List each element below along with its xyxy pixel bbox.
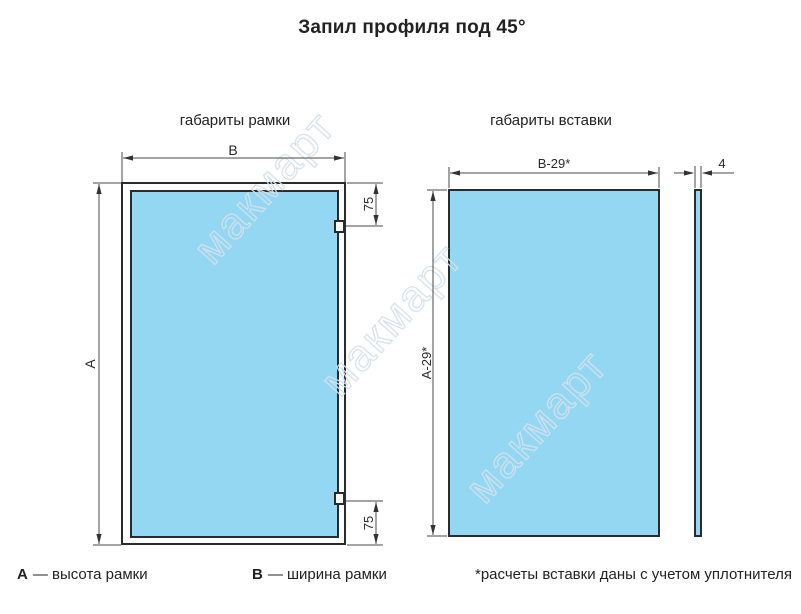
arrowhead-down	[373, 534, 378, 544]
arrowhead-right	[684, 170, 694, 175]
dim-label-hinge-bottom: 75	[361, 516, 376, 530]
arrowhead-up	[430, 191, 435, 201]
hinge-top	[334, 220, 345, 233]
arrowhead-left	[123, 155, 133, 160]
dim-frame-height: A	[82, 183, 121, 545]
dim-label-hinge-top: 75	[361, 197, 376, 211]
insert-section-label: габариты вставки	[436, 112, 666, 129]
arrowhead-left	[450, 170, 460, 175]
arrowhead-down	[96, 534, 101, 544]
dim-hinge-bottom-offset: 75	[346, 501, 383, 545]
dim-label-frame-width: B	[228, 142, 237, 158]
frame-section-label: габариты рамки	[120, 112, 350, 129]
arrowhead-right	[334, 155, 344, 160]
arrowhead-left	[702, 170, 712, 175]
legend-frame-height: A— высота рамки	[17, 566, 148, 583]
legend-b-text: — ширина рамки	[268, 566, 387, 583]
dim-label-insert-height: A-29*	[419, 347, 434, 380]
legend-frame-width: B— ширина рамки	[252, 566, 387, 583]
arrowhead-right	[648, 170, 658, 175]
diagram-canvas: Запил профиля под 45° габариты рамки габ…	[0, 0, 801, 614]
footnote: *расчеты вставки даны с учетом уплотните…	[475, 566, 792, 583]
legend-a-symbol: A	[17, 566, 28, 583]
hinge-bottom	[334, 492, 345, 505]
dim-label-insert-width: B-29*	[538, 156, 571, 171]
dim-hinge-top-offset: 75	[346, 183, 383, 226]
dim-label-frame-height: A	[82, 359, 98, 369]
page-title: Запил профиля под 45°	[298, 17, 526, 39]
legend-a-text: — высота рамки	[33, 566, 148, 583]
legend-b-symbol: B	[252, 566, 263, 583]
dim-label-insert-thickness: 4	[718, 156, 725, 171]
arrowhead-up	[373, 502, 378, 512]
dim-insert-thickness: 4	[674, 156, 734, 188]
arrowhead-down	[430, 525, 435, 535]
dim-insert-width: B-29*	[449, 156, 659, 188]
insert-side-view	[694, 189, 702, 537]
arrowhead-up	[96, 184, 101, 194]
arrowhead-up	[373, 184, 378, 194]
arrowhead-down	[373, 215, 378, 225]
